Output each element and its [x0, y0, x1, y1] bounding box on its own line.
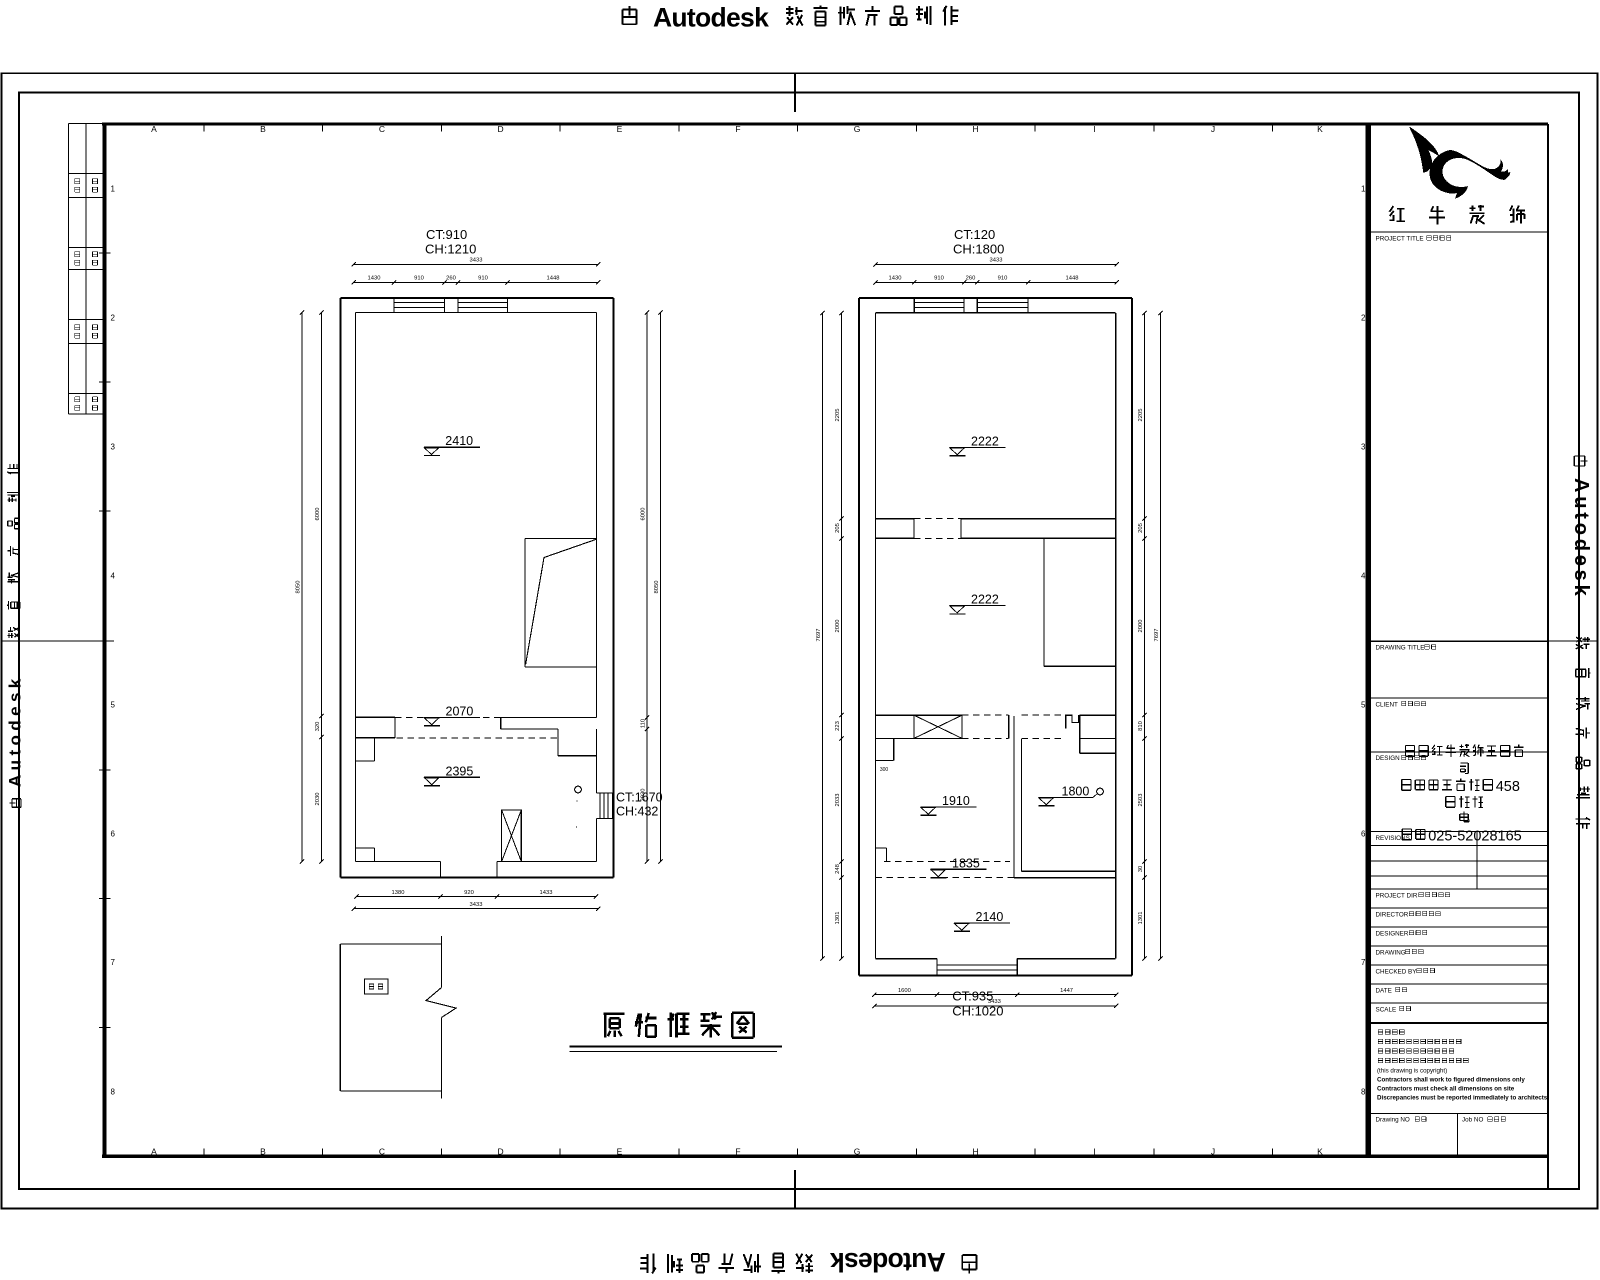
- svg-text:CH:432: CH:432: [616, 805, 658, 819]
- svg-text:6: 6: [111, 829, 116, 838]
- svg-text:I: I: [1093, 124, 1095, 134]
- svg-text:1301: 1301: [1138, 912, 1144, 925]
- svg-text:CT:1670: CT:1670: [616, 791, 663, 805]
- svg-text:6000: 6000: [640, 508, 646, 521]
- svg-text:910: 910: [414, 276, 424, 282]
- svg-text:Autodesk: Autodesk: [1570, 478, 1592, 600]
- svg-text:H: H: [973, 1147, 979, 1157]
- svg-text:2030: 2030: [315, 793, 321, 806]
- svg-text:320: 320: [315, 722, 321, 732]
- svg-text:Discrepancies must be reported: Discrepancies must be reported immediate…: [1377, 1095, 1548, 1102]
- svg-text:A: A: [151, 124, 157, 134]
- svg-text:CT:120: CT:120: [954, 227, 995, 242]
- svg-text:4: 4: [1361, 572, 1366, 581]
- svg-text:J: J: [1211, 1147, 1215, 1157]
- svg-text:2: 2: [111, 314, 116, 323]
- svg-text:3433: 3433: [470, 257, 483, 263]
- svg-text:1380: 1380: [392, 890, 405, 896]
- svg-text:G: G: [854, 124, 861, 134]
- svg-text:CHECKED BY: CHECKED BY: [1376, 968, 1418, 975]
- svg-text:DRAWING: DRAWING: [1376, 949, 1406, 956]
- svg-text:SCALE: SCALE: [1376, 1006, 1397, 1013]
- svg-text:A: A: [151, 1147, 157, 1157]
- svg-text:2205: 2205: [1138, 409, 1144, 422]
- svg-text:CH:1800: CH:1800: [953, 242, 1004, 257]
- svg-text:1448: 1448: [1066, 276, 1079, 282]
- svg-text:8050: 8050: [654, 581, 660, 594]
- svg-text:8: 8: [1361, 1088, 1366, 1097]
- svg-text:458: 458: [1496, 779, 1520, 795]
- svg-text:CT:910: CT:910: [426, 227, 467, 242]
- svg-text:810: 810: [1138, 721, 1144, 731]
- svg-text:2033: 2033: [835, 794, 841, 807]
- svg-text:1301: 1301: [835, 912, 841, 925]
- svg-text:CT:935: CT:935: [952, 989, 993, 1004]
- svg-text:205: 205: [1138, 523, 1144, 533]
- svg-text:7: 7: [1361, 958, 1366, 967]
- svg-text:8: 8: [111, 1088, 116, 1097]
- svg-text:K: K: [1317, 1147, 1323, 1157]
- svg-text:D: D: [498, 1147, 504, 1157]
- svg-text:5: 5: [111, 701, 116, 710]
- svg-text:2070: 2070: [446, 704, 474, 718]
- svg-text:1910: 1910: [942, 794, 970, 808]
- svg-text:2410: 2410: [445, 434, 473, 448]
- svg-text:Contractors shall work to figu: Contractors shall work to figured dimens…: [1377, 1077, 1525, 1084]
- svg-text:1: 1: [1361, 185, 1366, 194]
- svg-text:DIRECTOR: DIRECTOR: [1376, 911, 1409, 918]
- svg-text:223: 223: [835, 721, 841, 731]
- svg-text:2205: 2205: [835, 409, 841, 422]
- svg-text:G: G: [854, 1147, 861, 1157]
- svg-text:2000: 2000: [835, 620, 841, 633]
- svg-text:3: 3: [1361, 443, 1366, 452]
- svg-text:1430: 1430: [889, 276, 902, 282]
- svg-text:2: 2: [1361, 314, 1366, 323]
- svg-text:1835: 1835: [952, 856, 980, 870]
- svg-text:920: 920: [464, 890, 474, 896]
- svg-text:Autodesk: Autodesk: [5, 674, 24, 787]
- svg-text:Drawing NO: Drawing NO: [1376, 1117, 1410, 1124]
- svg-text:2503: 2503: [1138, 794, 1144, 807]
- svg-text:7: 7: [111, 958, 116, 967]
- svg-text:260: 260: [446, 276, 456, 282]
- svg-text:2222: 2222: [971, 593, 999, 607]
- svg-text:1447: 1447: [1060, 988, 1073, 994]
- svg-text:K: K: [1317, 124, 1323, 134]
- svg-text:B: B: [260, 1147, 266, 1157]
- svg-text:6000: 6000: [315, 508, 321, 521]
- svg-text:025-52028165: 025-52028165: [1428, 829, 1522, 845]
- svg-text:910: 910: [934, 276, 944, 282]
- svg-text:2395: 2395: [446, 764, 474, 778]
- svg-text:205: 205: [835, 523, 841, 533]
- svg-text:F: F: [735, 124, 740, 134]
- svg-text:F: F: [735, 1147, 740, 1157]
- svg-text:3433: 3433: [470, 902, 483, 908]
- svg-text:Autodesk: Autodesk: [830, 1247, 946, 1277]
- svg-text:2030: 2030: [640, 789, 646, 802]
- svg-text:260: 260: [966, 276, 976, 282]
- svg-text:910: 910: [998, 276, 1008, 282]
- svg-text:248: 248: [835, 864, 841, 874]
- svg-text:E: E: [617, 1147, 623, 1157]
- svg-text:1448: 1448: [547, 276, 560, 282]
- svg-text:3: 3: [111, 443, 116, 452]
- svg-text:910: 910: [478, 276, 488, 282]
- svg-text:D: D: [498, 124, 504, 134]
- svg-text:(this drawing is copyright): (this drawing is copyright): [1377, 1068, 1447, 1075]
- svg-text:1600: 1600: [898, 988, 911, 994]
- svg-text:PROJECT DIR: PROJECT DIR: [1376, 892, 1418, 899]
- svg-text:2222: 2222: [971, 434, 999, 448]
- svg-text:REVISIONS: REVISIONS: [1376, 835, 1410, 842]
- svg-text:CH:1210: CH:1210: [425, 242, 476, 257]
- svg-text:1430: 1430: [368, 276, 381, 282]
- svg-text:1: 1: [111, 185, 116, 194]
- svg-text:1800: 1800: [1062, 784, 1090, 798]
- svg-text:E: E: [617, 124, 623, 134]
- svg-text:DATE: DATE: [1376, 987, 1392, 994]
- svg-text:2000: 2000: [1138, 620, 1144, 633]
- svg-text:30: 30: [1138, 866, 1144, 872]
- svg-text:300: 300: [880, 767, 889, 773]
- svg-text:2140: 2140: [976, 910, 1004, 924]
- svg-text:8050: 8050: [296, 581, 302, 594]
- svg-text:CLIENT: CLIENT: [1376, 701, 1399, 708]
- svg-text:3433: 3433: [990, 257, 1003, 263]
- svg-text:J: J: [1211, 124, 1215, 134]
- svg-text:Autodesk: Autodesk: [653, 2, 769, 32]
- svg-text:DESIGN: DESIGN: [1376, 755, 1401, 762]
- svg-text:6: 6: [1361, 829, 1366, 838]
- svg-text:5: 5: [1361, 701, 1366, 710]
- svg-text:H: H: [973, 124, 979, 134]
- svg-text:C: C: [379, 1147, 385, 1157]
- svg-text:Contractors must check all dim: Contractors must check all dimensions on…: [1377, 1086, 1515, 1093]
- svg-text:PROJECT TITLE: PROJECT TITLE: [1376, 236, 1424, 243]
- svg-text:C: C: [379, 124, 385, 134]
- svg-text:CH:1020: CH:1020: [952, 1004, 1003, 1019]
- svg-text:I: I: [1093, 1147, 1095, 1157]
- svg-text:1433: 1433: [540, 890, 553, 896]
- svg-text:B: B: [260, 124, 266, 134]
- svg-text:4: 4: [111, 572, 116, 581]
- svg-text:110: 110: [640, 719, 646, 728]
- svg-text:7697: 7697: [1154, 629, 1160, 642]
- svg-text:Job NO: Job NO: [1462, 1117, 1483, 1124]
- svg-text:DRAWING TITLE: DRAWING TITLE: [1376, 645, 1425, 652]
- svg-text:DESIGNER: DESIGNER: [1376, 930, 1409, 937]
- svg-text:7697: 7697: [816, 629, 822, 642]
